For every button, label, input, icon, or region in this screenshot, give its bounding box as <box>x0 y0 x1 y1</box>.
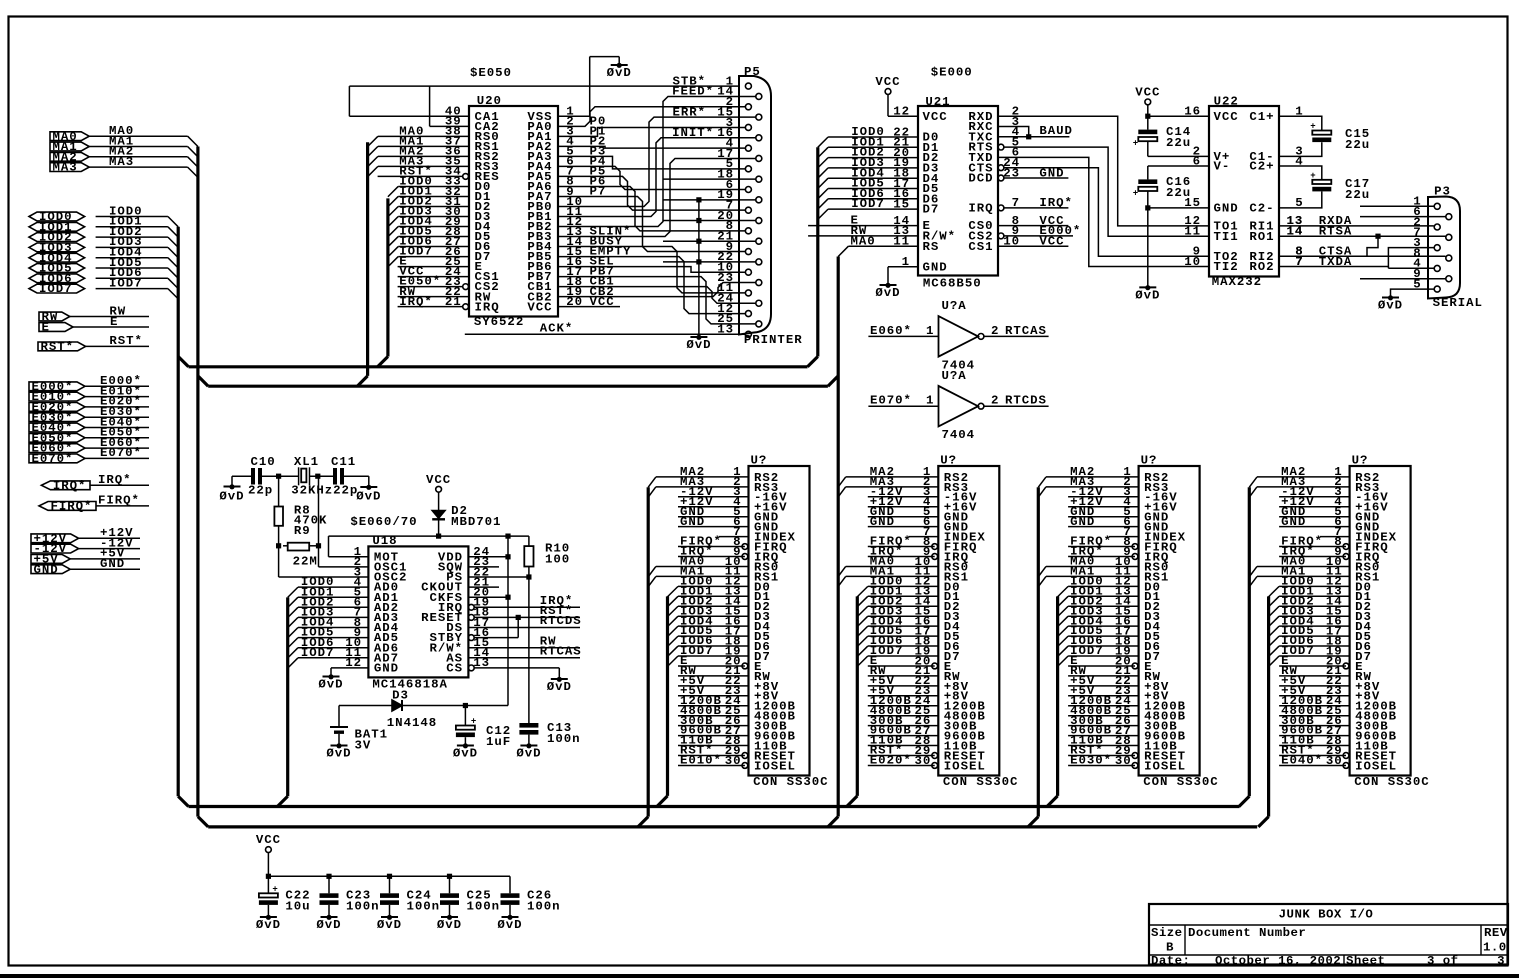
svg-text:GND: GND <box>870 515 895 529</box>
svg-text:U?A: U?A <box>942 299 967 313</box>
svg-text:30: 30 <box>1115 754 1132 768</box>
svg-text:GND: GND <box>680 515 705 529</box>
svg-text:ØvD: ØvD <box>607 66 632 80</box>
svg-text:IOD7: IOD7 <box>301 646 335 660</box>
svg-text:TI2: TI2 <box>1214 260 1239 274</box>
svg-text:$E060/70: $E060/70 <box>350 515 417 529</box>
svg-text:100: 100 <box>545 553 570 567</box>
svg-text:10: 10 <box>1003 235 1020 249</box>
svg-text:MAX232: MAX232 <box>1212 275 1262 289</box>
svg-text:E020*: E020* <box>870 754 912 768</box>
svg-text:22p: 22p <box>333 484 358 498</box>
svg-text:C10: C10 <box>251 455 276 469</box>
svg-text:VCC: VCC <box>1039 235 1064 249</box>
svg-text:GND: GND <box>1070 515 1095 529</box>
svg-text:IRQ*: IRQ* <box>98 473 132 487</box>
svg-text:+: + <box>1133 188 1138 198</box>
svg-text:E070*: E070* <box>100 446 142 460</box>
svg-text:100n: 100n <box>346 900 380 914</box>
svg-text:ØvD: ØvD <box>326 747 351 761</box>
svg-text:MA3: MA3 <box>53 161 78 175</box>
svg-text:Sheet: Sheet <box>1346 954 1385 968</box>
svg-text:IOD7: IOD7 <box>851 197 885 211</box>
svg-text:ØvD: ØvD <box>377 918 402 932</box>
svg-text:ØvD: ØvD <box>875 286 900 300</box>
svg-text:IOD7: IOD7 <box>39 282 73 296</box>
svg-text:IRQ*: IRQ* <box>53 479 87 493</box>
svg-text:1: 1 <box>926 324 934 338</box>
svg-text:SY6522: SY6522 <box>474 315 524 329</box>
svg-text:ØvD: ØvD <box>256 918 281 932</box>
svg-text:CON SS30C: CON SS30C <box>1143 775 1218 789</box>
svg-text:CON SS30C: CON SS30C <box>1354 775 1429 789</box>
svg-text:ØvD: ØvD <box>686 338 711 352</box>
svg-text:GND: GND <box>34 563 59 577</box>
svg-text:100n: 100n <box>407 900 441 914</box>
svg-text:XL1: XL1 <box>294 455 319 469</box>
svg-text:VCC: VCC <box>256 833 281 847</box>
svg-text:1.0: 1.0 <box>1483 941 1507 955</box>
svg-text:U?A: U?A <box>942 369 967 383</box>
svg-text:14: 14 <box>1287 225 1304 239</box>
svg-text:SERIAL: SERIAL <box>1433 296 1483 310</box>
svg-text:GND: GND <box>100 557 125 571</box>
svg-text:1: 1 <box>926 394 934 408</box>
svg-text:E070*: E070* <box>32 452 74 466</box>
svg-text:ØvD: ØvD <box>318 678 343 692</box>
svg-text:IOD7: IOD7 <box>109 276 143 290</box>
svg-text:IRQ: IRQ <box>968 202 993 216</box>
svg-text:IRQ*: IRQ* <box>1039 196 1073 210</box>
svg-text:32KHz: 32KHz <box>291 484 333 498</box>
svg-text:22u: 22u <box>1166 186 1191 200</box>
svg-text:22M: 22M <box>293 555 318 569</box>
svg-text:VCC: VCC <box>527 300 552 314</box>
svg-text:RTCDS: RTCDS <box>1005 394 1047 408</box>
svg-text:VCC: VCC <box>923 110 948 124</box>
svg-text:10: 10 <box>1184 255 1201 269</box>
svg-text:RO2: RO2 <box>1249 260 1274 274</box>
svg-text:CON SS30C: CON SS30C <box>753 775 828 789</box>
svg-text:22u: 22u <box>1166 136 1191 150</box>
svg-text:30: 30 <box>915 754 932 768</box>
svg-text:1uF: 1uF <box>486 735 511 749</box>
svg-text:ØvD: ØvD <box>219 490 244 504</box>
svg-text:Size: Size <box>1151 926 1183 940</box>
svg-text:ACK*: ACK* <box>540 322 574 336</box>
svg-text:7404: 7404 <box>942 428 976 442</box>
svg-text:ØvD: ØvD <box>453 747 478 761</box>
svg-text:October 16, 2002: October 16, 2002 <box>1215 954 1341 968</box>
svg-text:MA3: MA3 <box>109 155 134 169</box>
svg-text:MA0: MA0 <box>851 234 876 248</box>
svg-text:1N4148: 1N4148 <box>387 716 437 730</box>
svg-text:CON SS30C: CON SS30C <box>943 775 1018 789</box>
svg-text:15: 15 <box>893 197 910 211</box>
svg-text:Date:: Date: <box>1151 954 1190 968</box>
svg-text:22u: 22u <box>1345 138 1370 152</box>
svg-text:R9: R9 <box>294 524 311 538</box>
svg-text:12: 12 <box>893 105 910 119</box>
svg-text:CS1: CS1 <box>968 240 993 254</box>
svg-text:ØvD: ØvD <box>356 490 381 504</box>
svg-text:ØvD: ØvD <box>497 918 522 932</box>
svg-text:ØvD: ØvD <box>1135 288 1160 302</box>
svg-text:RST*: RST* <box>41 340 75 354</box>
svg-text:TI1: TI1 <box>1214 230 1239 244</box>
svg-text:ØvD: ØvD <box>516 747 541 761</box>
svg-text:IOSEL: IOSEL <box>944 759 986 773</box>
svg-text:GND: GND <box>923 260 948 274</box>
svg-text:E070*: E070* <box>870 394 912 408</box>
svg-text:JUNK BOX I/O: JUNK BOX I/O <box>1279 908 1374 922</box>
svg-text:+: + <box>1133 139 1138 149</box>
svg-text:GND: GND <box>1214 202 1239 216</box>
svg-text:E010*: E010* <box>680 754 722 768</box>
svg-text:IOSEL: IOSEL <box>1355 759 1397 773</box>
svg-text:ØvD: ØvD <box>547 680 572 694</box>
svg-text:E: E <box>110 315 118 329</box>
svg-text:23: 23 <box>1003 166 1020 180</box>
svg-text:PRINTER: PRINTER <box>744 333 803 347</box>
svg-text:RTCAS: RTCAS <box>540 644 582 658</box>
svg-text:VCC: VCC <box>426 473 451 487</box>
svg-text:GND: GND <box>374 662 399 676</box>
svg-text:DCD: DCD <box>968 172 993 186</box>
svg-text:C2+: C2+ <box>1249 160 1274 174</box>
svg-text:$E000: $E000 <box>931 66 973 80</box>
svg-text:7: 7 <box>1295 255 1303 269</box>
svg-text:2: 2 <box>991 324 999 338</box>
svg-text:22u: 22u <box>1345 188 1370 202</box>
svg-text:REV: REV <box>1484 926 1508 940</box>
svg-text:2: 2 <box>991 394 999 408</box>
svg-text:TXDA: TXDA <box>1319 255 1353 269</box>
svg-text:3 of: 3 of <box>1427 954 1459 968</box>
svg-text:3: 3 <box>1497 954 1505 968</box>
svg-text:RTSA: RTSA <box>1319 225 1353 239</box>
svg-text:C2-: C2- <box>1249 202 1274 216</box>
svg-text:VCC: VCC <box>875 75 900 89</box>
svg-text:C1+: C1+ <box>1249 110 1274 124</box>
svg-text:IOSEL: IOSEL <box>1144 759 1186 773</box>
svg-text:RTCAS: RTCAS <box>1005 324 1047 338</box>
svg-text:RO1: RO1 <box>1249 230 1274 244</box>
svg-text:E060*: E060* <box>870 324 912 338</box>
svg-text:D7: D7 <box>923 203 940 217</box>
svg-text:MC68B50: MC68B50 <box>923 277 982 291</box>
svg-text:ØvD: ØvD <box>1378 299 1403 313</box>
svg-text:IOSEL: IOSEL <box>754 759 796 773</box>
svg-text:3V: 3V <box>355 739 372 753</box>
svg-text:30: 30 <box>1326 754 1343 768</box>
svg-text:22p: 22p <box>248 484 273 498</box>
svg-text:100n: 100n <box>547 732 581 746</box>
svg-text:RTCDS: RTCDS <box>540 614 582 628</box>
svg-text:100n: 100n <box>527 900 561 914</box>
svg-text:GND: GND <box>1039 166 1064 180</box>
svg-text:FIRQ*: FIRQ* <box>51 500 93 514</box>
svg-text:11: 11 <box>1184 225 1201 239</box>
svg-text:VCC: VCC <box>1214 110 1239 124</box>
svg-text:E: E <box>42 321 50 335</box>
svg-text:RST*: RST* <box>109 334 143 348</box>
svg-text:E030*: E030* <box>1070 754 1112 768</box>
svg-text:V-: V- <box>1214 160 1231 174</box>
svg-text:E040*: E040* <box>1281 754 1323 768</box>
svg-text:IRQ: IRQ <box>475 300 500 314</box>
svg-text:VCC: VCC <box>1135 85 1160 99</box>
svg-text:CS: CS <box>446 662 463 676</box>
svg-text:10u: 10u <box>285 900 310 914</box>
svg-text:D3: D3 <box>392 689 409 703</box>
svg-text:FIRQ*: FIRQ* <box>98 494 140 508</box>
svg-text:11: 11 <box>893 235 910 249</box>
svg-text:Document Number: Document Number <box>1188 926 1306 940</box>
svg-text:1: 1 <box>902 255 910 269</box>
svg-text:100n: 100n <box>467 900 501 914</box>
svg-text:$E050: $E050 <box>470 66 512 80</box>
svg-text:C11: C11 <box>331 455 356 469</box>
svg-text:RS: RS <box>923 240 940 254</box>
svg-text:BAUD: BAUD <box>1039 124 1073 138</box>
svg-text:7: 7 <box>1012 196 1020 210</box>
svg-text:30: 30 <box>725 754 742 768</box>
svg-text:MC146818A: MC146818A <box>372 678 447 692</box>
svg-text:B: B <box>1166 941 1174 955</box>
svg-text:MBD701: MBD701 <box>451 515 501 529</box>
svg-text:GND: GND <box>1281 515 1306 529</box>
svg-text:ØvD: ØvD <box>316 918 341 932</box>
svg-text:ØvD: ØvD <box>437 918 462 932</box>
